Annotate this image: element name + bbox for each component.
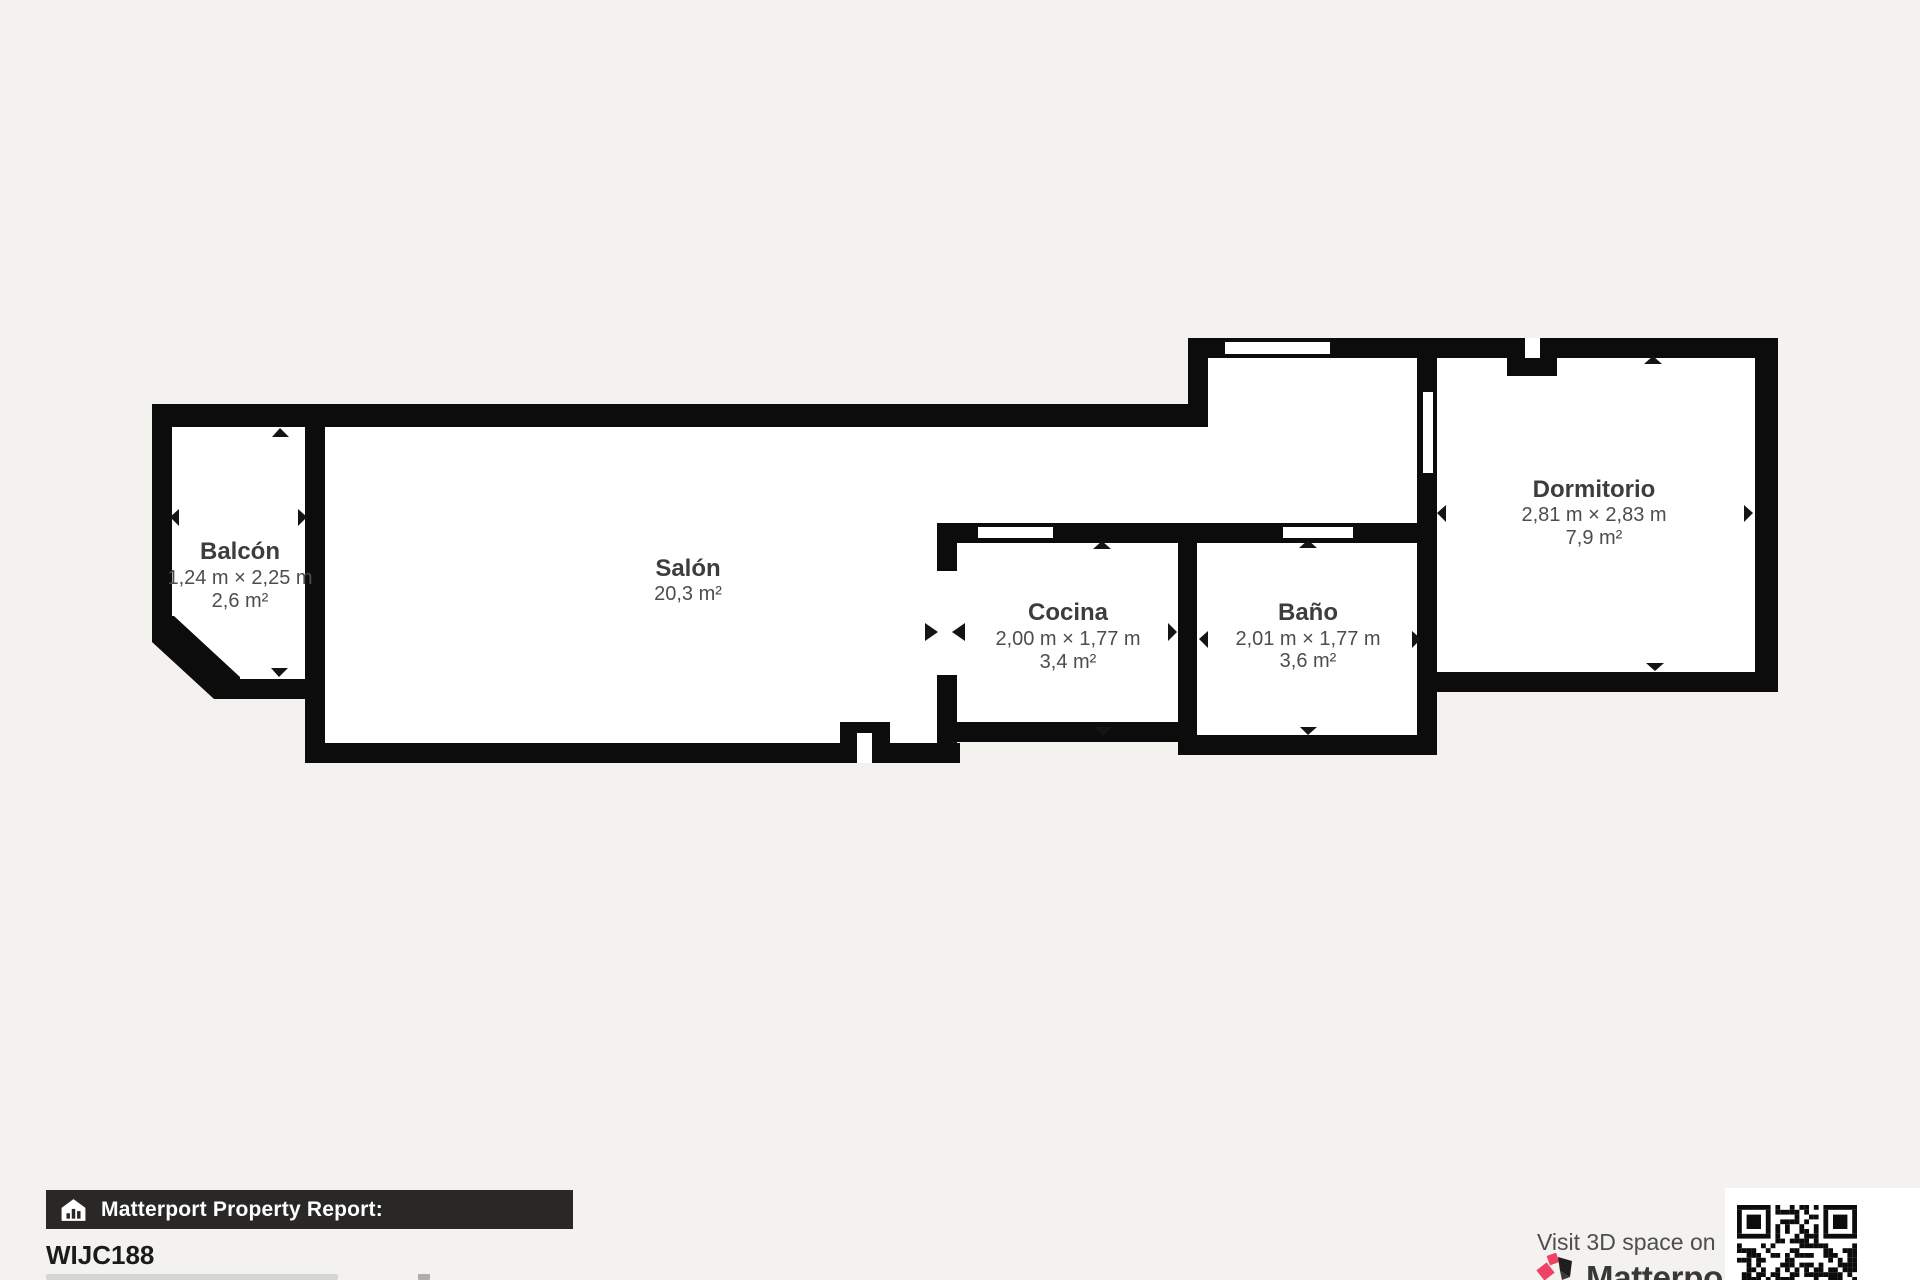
bano-name: Baño <box>1278 599 1338 626</box>
wall-cocina-bottom <box>937 722 1197 742</box>
cocina-dimensions: 2,00 m × 1,77 m <box>995 628 1140 650</box>
floor-plan: Balcón 1,24 m × 2,25 m 2,6 m² Salón 20,3… <box>0 0 1920 1280</box>
matterport-logo-icon <box>1536 1253 1578 1280</box>
room-label-salon: Salón 20,3 m² <box>654 555 722 605</box>
cocina-window <box>978 527 1053 538</box>
dormitorio-dimensions: 2,81 m × 2,83 m <box>1521 504 1666 526</box>
balcon-area: 2,6 m² <box>212 590 269 612</box>
salon-name: Salón <box>655 555 720 582</box>
dormitorio-name: Dormitorio <box>1533 476 1656 503</box>
wall-dormitorio-bottom <box>1417 672 1778 692</box>
report-banner-label: Matterport Property Report: <box>101 1198 383 1222</box>
report-banner: Matterport Property Report: <box>46 1190 573 1229</box>
cocina-door-opening <box>937 571 957 675</box>
dormitorio-left-window <box>1423 392 1433 473</box>
bano-dimensions: 2,01 m × 1,77 m <box>1235 628 1380 650</box>
salon-bottom-slot <box>857 733 872 763</box>
balcon-name: Balcón <box>200 538 280 565</box>
matterport-house-icon <box>60 1197 87 1223</box>
property-id: WIJC188 <box>46 1240 154 1271</box>
visit-3d-text: Visit 3D space on <box>1537 1229 1716 1256</box>
matterport-wordmark: Matterport <box>1586 1261 1746 1280</box>
cocina-area: 3,4 m² <box>1040 651 1097 673</box>
bano-area: 3,6 m² <box>1280 650 1337 672</box>
balcon-dimensions: 1,24 m × 2,25 m <box>167 567 312 589</box>
salon-area: 20,3 m² <box>654 583 722 605</box>
wall-bano-bottom <box>1178 735 1437 755</box>
wall-hall-alcove-left <box>1188 338 1208 427</box>
dormitorio-top-slot <box>1525 338 1540 358</box>
cutoff-text-remnant <box>46 1274 338 1280</box>
cutoff-text-mark <box>418 1274 430 1280</box>
qr-code <box>1725 1188 1920 1280</box>
wall-dormitorio-right <box>1755 338 1778 692</box>
bano-window <box>1283 527 1353 538</box>
wall-dormitorio-top <box>1417 338 1778 358</box>
hall-alcove-window <box>1225 342 1330 354</box>
wall-dormitorio-top-notch <box>1507 358 1557 376</box>
wall-cocina-bano-divider <box>1178 523 1197 742</box>
property-report-page: Balcón 1,24 m × 2,25 m 2,6 m² Salón 20,3… <box>0 0 1920 1280</box>
dormitorio-area: 7,9 m² <box>1566 527 1623 549</box>
cocina-name: Cocina <box>1028 599 1109 626</box>
